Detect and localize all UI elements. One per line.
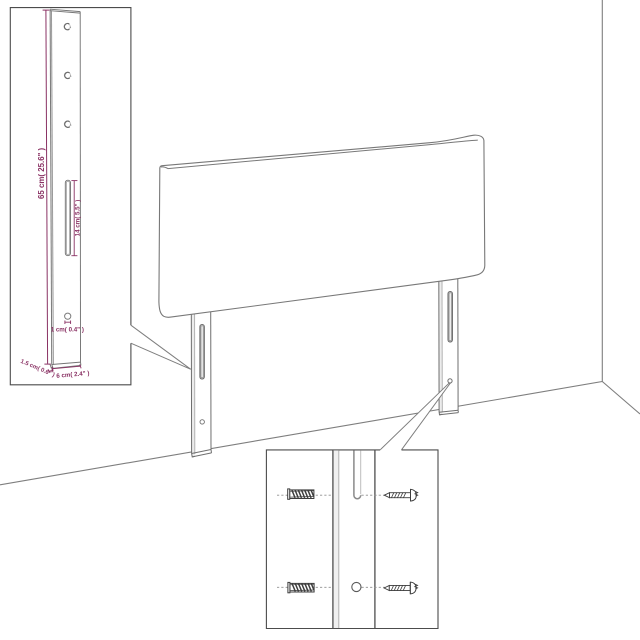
svg-text:14 cm( 5.5" ): 14 cm( 5.5" )	[74, 200, 81, 237]
svg-text:1 cm( 0.4" ): 1 cm( 0.4" )	[51, 327, 84, 334]
svg-text:65 cm( 25.6" ): 65 cm( 25.6" )	[37, 147, 46, 198]
